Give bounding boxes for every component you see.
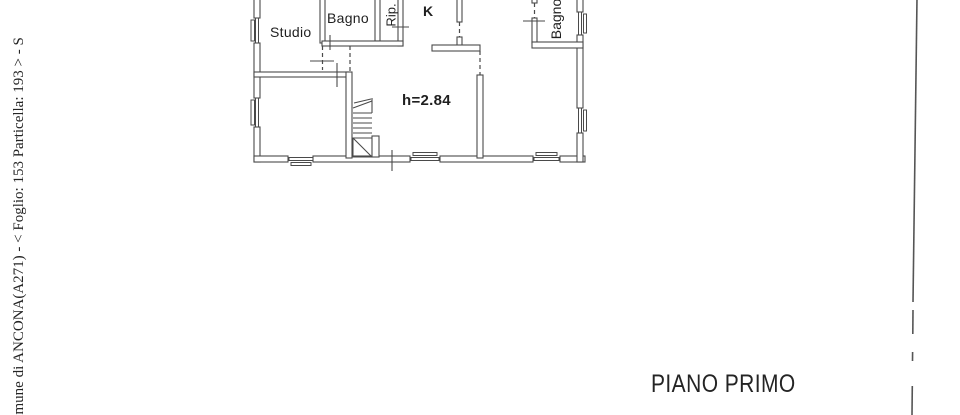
cadastral-margin-note: omune di ANCONA(A271) - < Foglio: 153 Pa… [12, 37, 27, 415]
floor-plan-linework [0, 0, 960, 415]
scanned-floor-plan-page: Studio Bagno Rip. K Bagno h=2.84 PIANO P… [0, 0, 960, 415]
ceiling-height-annotation: h=2.84 [402, 93, 451, 108]
staircase-symbol [353, 98, 372, 157]
room-label-kitchen: K [423, 4, 433, 18]
room-label-ripostiglio: Rip. [385, 3, 398, 26]
scan-edge-line [912, 0, 917, 415]
room-label-bagno-right: Bagno [549, 0, 563, 39]
room-label-bagno-top: Bagno [327, 11, 369, 25]
room-label-studio: Studio [270, 25, 312, 39]
floor-title: PIANO PRIMO [651, 372, 796, 397]
